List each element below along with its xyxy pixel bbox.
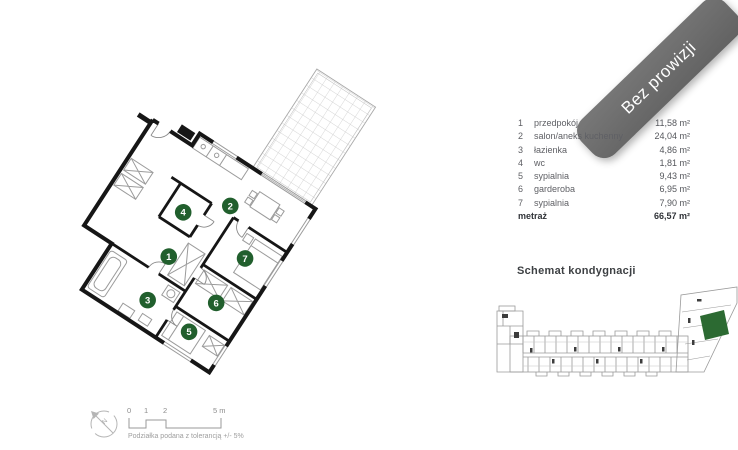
legend-row: 5sypialnia9,43 m² [518, 170, 690, 183]
scale-tick-5m: 5 m [213, 406, 226, 415]
room-area: 1,81 m² [659, 157, 690, 170]
ribbon-label: Bez prowizji [618, 38, 701, 119]
total-area: 66,57 m² [654, 210, 690, 223]
scale-tick-1: 1 [144, 406, 148, 415]
room-circle-3: 3 [136, 289, 159, 312]
room-number: 7 [518, 197, 534, 210]
scale-tick-2: 2 [163, 406, 167, 415]
floor-schematic [490, 283, 738, 383]
room-number: 1 [518, 117, 534, 130]
legend-row: 2salon/aneks kuchenny24,04 m² [518, 130, 690, 143]
legend-total-row: metraż66,57 m² [518, 210, 690, 223]
scale-bar-line [129, 418, 221, 428]
room-area: 11,58 m² [655, 117, 690, 130]
scale-bar: N 0 1 2 5 m [80, 398, 280, 448]
room-area: 4,86 m² [659, 144, 690, 157]
room-name: przedpokój [534, 117, 655, 130]
room-name: łazienka [534, 144, 659, 157]
legend-row: 7sypialnia7,90 m² [518, 197, 690, 210]
total-label: metraż [518, 210, 654, 223]
room-circle-4: 4 [172, 201, 195, 224]
room-number: 4 [518, 157, 534, 170]
room-name: sypialnia [534, 197, 659, 210]
room-number: 2 [518, 130, 534, 143]
north-compass-icon: N [91, 411, 117, 437]
svg-text:5: 5 [186, 327, 192, 338]
room-name: salon/aneks kuchenny [534, 130, 654, 143]
page: 1 2 3 4 5 6 7 Bez prowizji 1przedpokój11… [0, 0, 738, 450]
room-circle-2: 2 [219, 194, 242, 217]
room-name: wc [534, 157, 659, 170]
room-area: 7,90 m² [659, 197, 690, 210]
room-number: 6 [518, 183, 534, 196]
svg-text:N: N [101, 417, 109, 425]
svg-text:1: 1 [166, 252, 172, 263]
room-circle-6: 6 [205, 291, 228, 314]
room-name: sypialnia [534, 170, 659, 183]
svg-text:6: 6 [214, 298, 219, 309]
legend-row: 4wc1,81 m² [518, 157, 690, 170]
room-number: 5 [518, 170, 534, 183]
room-number: 3 [518, 144, 534, 157]
svg-text:7: 7 [242, 254, 247, 265]
scale-tick-0: 0 [127, 406, 131, 415]
svg-text:2: 2 [228, 201, 233, 212]
scale-tolerance-note: Podziałka podana z tolerancją +/- 5% [128, 433, 244, 440]
legend-row: 6garderoba6,95 m² [518, 183, 690, 196]
room-name: garderoba [534, 183, 659, 196]
highlighted-unit [700, 310, 729, 340]
terrace [253, 69, 376, 206]
schematic-title: Schemat kondygnacji [517, 265, 636, 277]
legend-row: 3łazienka4,86 m² [518, 144, 690, 157]
room-legend: 1przedpokój11,58 m² 2salon/aneks kuchenn… [518, 117, 690, 223]
floor-plan: 1 2 3 4 5 6 7 [0, 0, 420, 400]
svg-text:4: 4 [181, 208, 187, 219]
room-area: 24,04 m² [654, 130, 690, 143]
svg-text:3: 3 [145, 296, 150, 307]
room-area: 6,95 m² [659, 183, 690, 196]
legend-row: 1przedpokój11,58 m² [518, 117, 690, 130]
room-area: 9,43 m² [659, 170, 690, 183]
